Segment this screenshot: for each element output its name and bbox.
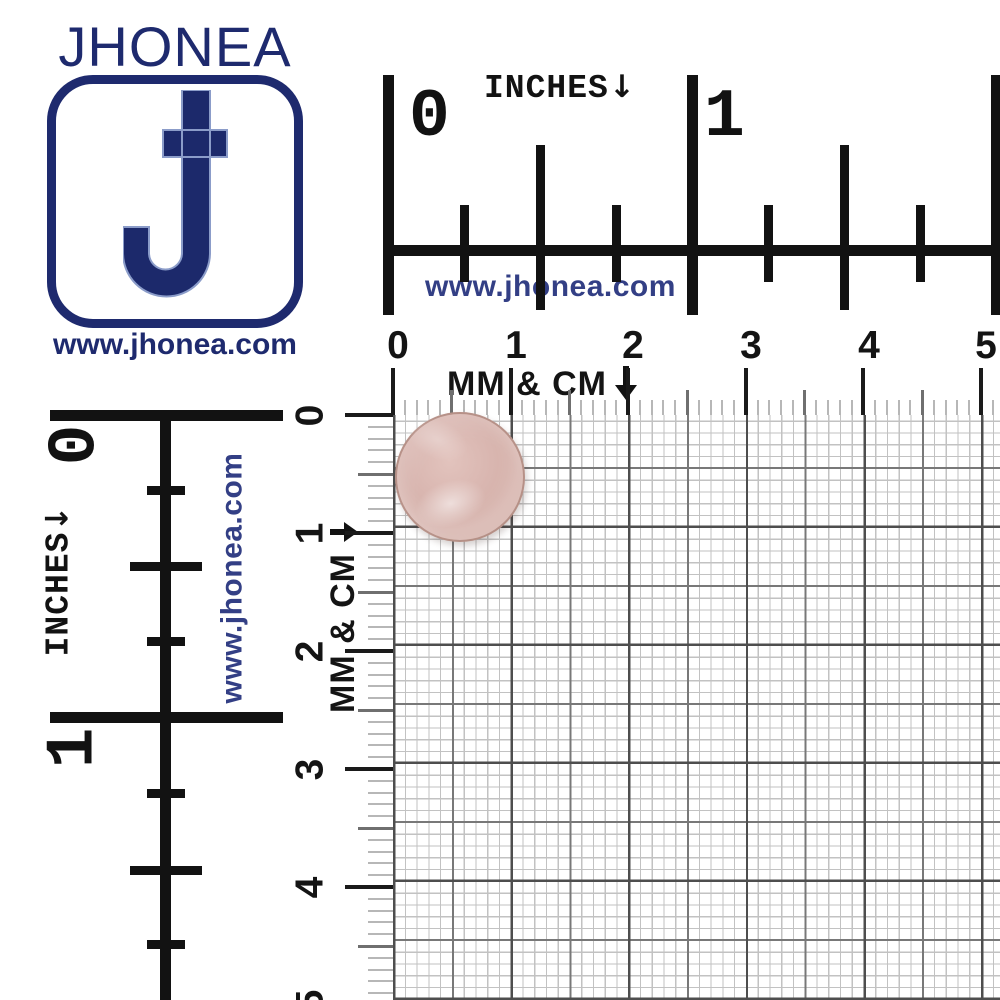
inch-ruler-left-line [160, 410, 171, 1000]
inch-number-left-1: 1 [46, 720, 102, 776]
j-logo-icon [123, 90, 230, 310]
ruler-tick [345, 885, 393, 889]
ruler-tick [792, 400, 794, 415]
ruler-tick [368, 862, 393, 864]
cm-number-top-5: 5 [966, 326, 1000, 365]
ruler-tick [861, 368, 865, 415]
ruler-tick [147, 789, 185, 798]
website-left: www.jhonea.com [214, 460, 250, 696]
ruler-tick [592, 400, 594, 415]
ruler-tick [698, 400, 700, 415]
ruler-tick [612, 205, 621, 282]
ruler-tick [368, 851, 393, 853]
ruler-tick [545, 400, 547, 415]
ruler-tick [368, 697, 393, 699]
cm-number-left-1: 1 [290, 513, 330, 553]
ruler-tick [368, 426, 393, 428]
ruler-tick [368, 980, 393, 982]
mm-cm-label-left: MM & CM [324, 550, 362, 716]
ruler-tick [368, 520, 393, 522]
cm-number-top-1: 1 [496, 326, 536, 365]
ruler-tick [416, 400, 418, 415]
brand-website: www.jhonea.com [40, 328, 310, 362]
ruler-tick [358, 473, 393, 476]
ruler-tick [404, 400, 406, 415]
ruler-tick [626, 368, 630, 415]
down-arrow-icon: ↓ [609, 69, 636, 105]
ruler-tick [368, 874, 393, 876]
ruler-tick [639, 400, 641, 415]
ruler-tick [368, 933, 393, 935]
ruler-tick [368, 638, 393, 640]
ruler-tick [662, 400, 664, 415]
ruler-tick [368, 579, 393, 581]
ruler-tick [147, 486, 185, 495]
cm-number-left-5: 5 [290, 980, 330, 1000]
ruler-tick [368, 733, 393, 735]
ruler-tick [368, 839, 393, 841]
ruler-tick [744, 368, 748, 415]
ruler-tick [604, 400, 606, 415]
ruler-tick [733, 400, 735, 415]
ruler-tick [368, 544, 393, 546]
ruler-tick [536, 145, 545, 310]
ruler-tick [509, 368, 513, 415]
ruler-tick [427, 400, 429, 415]
ruler-tick [368, 721, 393, 723]
cm-number-top-3: 3 [731, 326, 771, 365]
ruler-tick [979, 368, 983, 415]
ruler-tick [757, 400, 759, 415]
ruler-tick [916, 205, 925, 282]
ruler-tick [803, 390, 806, 415]
ruler-tick [368, 485, 393, 487]
ruler-tick [827, 400, 829, 415]
ruler-tick [533, 400, 535, 415]
ruler-tick [368, 626, 393, 628]
ruler-tick [568, 390, 571, 415]
inch-number-top-0: 0 [409, 84, 450, 152]
ruler-tick [956, 400, 958, 415]
brand-name: JHONEA [35, 14, 315, 79]
ruler-tick [368, 508, 393, 510]
ruler-tick [368, 461, 393, 463]
ruler-tick [368, 497, 393, 499]
ruler-tick [768, 400, 770, 415]
ruler-tick [450, 390, 453, 415]
ruler-tick [368, 992, 393, 994]
ruler-tick [498, 400, 500, 415]
ruler-tick [130, 562, 202, 571]
inch-number-top-1: 1 [704, 84, 745, 152]
ruler-tick [851, 400, 853, 415]
ruler-tick [368, 744, 393, 746]
ruler-tick [721, 400, 723, 415]
inches-label-left-text: INCHES [41, 531, 78, 656]
ruler-tick [687, 75, 698, 315]
ruler-tick [368, 792, 393, 794]
ruler-tick [368, 685, 393, 687]
ruler-tick [368, 556, 393, 558]
ruler-tick [968, 400, 970, 415]
ruler-tick [839, 400, 841, 415]
ruler-tick [898, 400, 900, 415]
ruler-tick [383, 75, 394, 315]
ruler-tick [368, 969, 393, 971]
cm-number-left-0: 0 [290, 395, 330, 435]
page: JHONEA www.jhonea.com 0 1 INCHES↓ www.jh… [0, 0, 1000, 1000]
ruler-tick [840, 145, 849, 310]
ruler-tick [358, 827, 393, 830]
ruler-tick [368, 898, 393, 900]
ruler-tick [710, 400, 712, 415]
ruler-tick [147, 940, 185, 949]
ruler-tick [992, 400, 994, 415]
inches-label-left: INCHES↓ [37, 498, 81, 662]
ruler-tick [557, 400, 559, 415]
ruler-tick [358, 709, 393, 712]
ruler-tick [391, 368, 395, 415]
cm-number-top-0: 0 [378, 326, 418, 365]
ruler-tick [945, 400, 947, 415]
ruler-tick [147, 637, 185, 646]
product-button [395, 412, 525, 542]
ruler-tick [368, 921, 393, 923]
mm-cm-label-top: MM & CM [447, 367, 607, 401]
ruler-tick [345, 649, 393, 653]
ruler-tick [764, 205, 773, 282]
ruler-tick [368, 438, 393, 440]
ruler-tick [368, 780, 393, 782]
ruler-tick [50, 712, 283, 723]
ruler-tick [486, 400, 488, 415]
ruler-tick [991, 75, 1000, 315]
ruler-tick [615, 400, 617, 415]
ruler-tick [815, 400, 817, 415]
ruler-tick [439, 400, 441, 415]
ruler-tick [50, 410, 283, 421]
ruler-tick [368, 910, 393, 912]
ruler-tick [368, 449, 393, 451]
ruler-tick [368, 756, 393, 758]
ruler-tick [368, 815, 393, 817]
ruler-tick [368, 615, 393, 617]
ruler-tick [345, 531, 393, 535]
ruler-tick [368, 957, 393, 959]
ruler-tick [130, 866, 202, 875]
ruler-tick [368, 803, 393, 805]
inches-label-top: INCHES↓ [484, 72, 636, 105]
ruler-tick [933, 400, 935, 415]
ruler-tick [874, 400, 876, 415]
inch-number-left-0: 0 [48, 417, 104, 473]
ruler-tick [780, 400, 782, 415]
inches-label-top-text: INCHES [484, 70, 609, 107]
cm-number-top-4: 4 [849, 326, 889, 365]
ruler-tick [909, 400, 911, 415]
down-arrow-icon-left: ↓ [40, 504, 76, 531]
ruler-tick [368, 662, 393, 664]
ruler-tick [345, 767, 393, 771]
ruler-tick [674, 400, 676, 415]
cm-number-left-3: 3 [290, 749, 330, 789]
ruler-tick [368, 567, 393, 569]
ruler-tick [460, 205, 469, 282]
ruler-tick [686, 390, 689, 415]
ruler-tick [358, 945, 393, 948]
ruler-tick [580, 400, 582, 415]
ruler-tick [368, 674, 393, 676]
ruler-tick [521, 400, 523, 415]
ruler-tick [345, 413, 393, 417]
ruler-tick [368, 603, 393, 605]
ruler-tick [358, 591, 393, 594]
ruler-tick [886, 400, 888, 415]
ruler-tick [651, 400, 653, 415]
cm-number-top-2: 2 [613, 326, 653, 365]
ruler-tick [921, 390, 924, 415]
cm-number-left-4: 4 [290, 867, 330, 907]
